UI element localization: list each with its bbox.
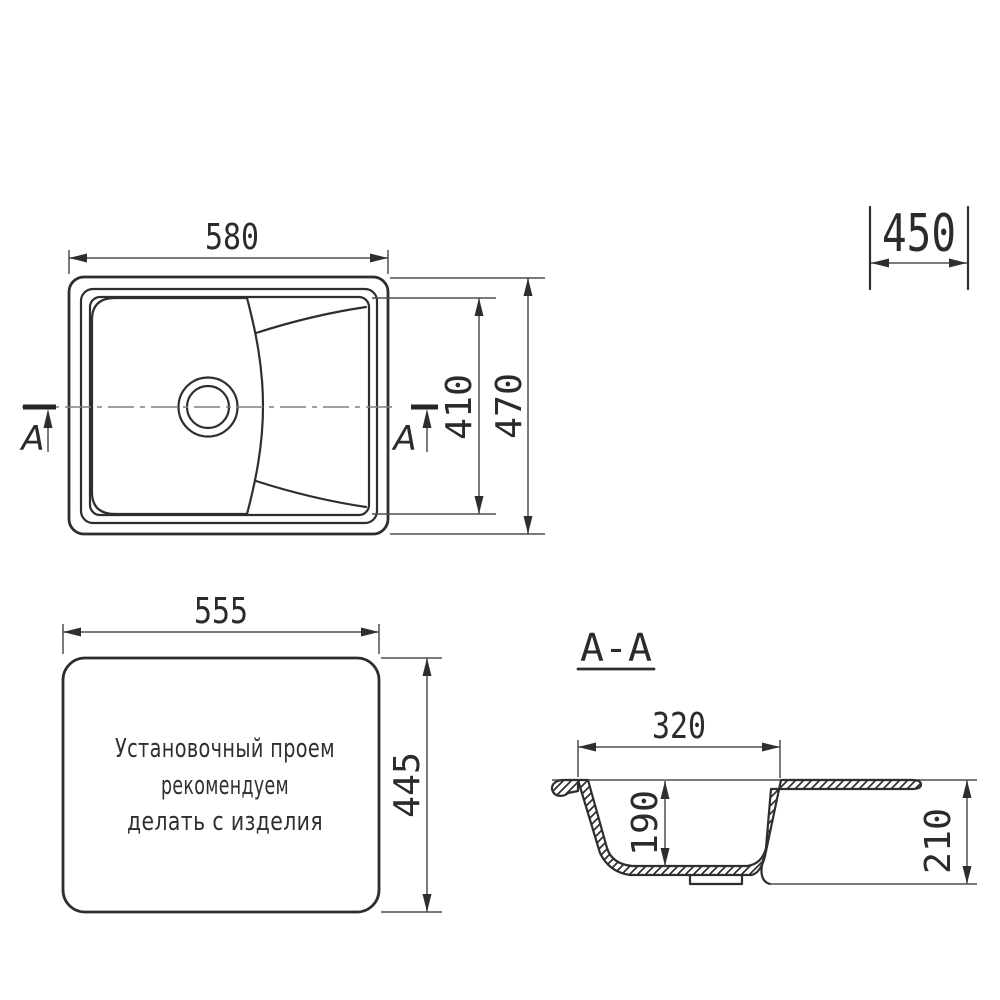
cutout-note-line-3: делать с изделия (127, 807, 323, 837)
dim-190-label: 190 (625, 790, 666, 856)
technical-drawing-page: A A 580 410 470 450 (0, 0, 1000, 1000)
dim-210-label: 210 (918, 808, 959, 874)
dim-445-label: 445 (387, 752, 428, 818)
section-letter-left: A (19, 419, 44, 459)
dim-320-label: 320 (652, 706, 706, 747)
canvas-background (0, 0, 1000, 1000)
dim-580-label: 580 (205, 217, 259, 258)
sink-technical-drawing: A A 580 410 470 450 (0, 0, 1000, 1000)
dim-470-label: 470 (489, 373, 530, 439)
dim-555-label: 555 (194, 591, 248, 632)
dim-410-label: 410 (439, 374, 480, 440)
section-letter-right: A (391, 419, 416, 459)
cutout-note-line-1: Установочный проем (115, 734, 335, 764)
cutout-note-line-2: рекомендуем (161, 771, 289, 801)
dim-450-label: 450 (882, 204, 956, 264)
section-title: A-A (580, 626, 652, 670)
